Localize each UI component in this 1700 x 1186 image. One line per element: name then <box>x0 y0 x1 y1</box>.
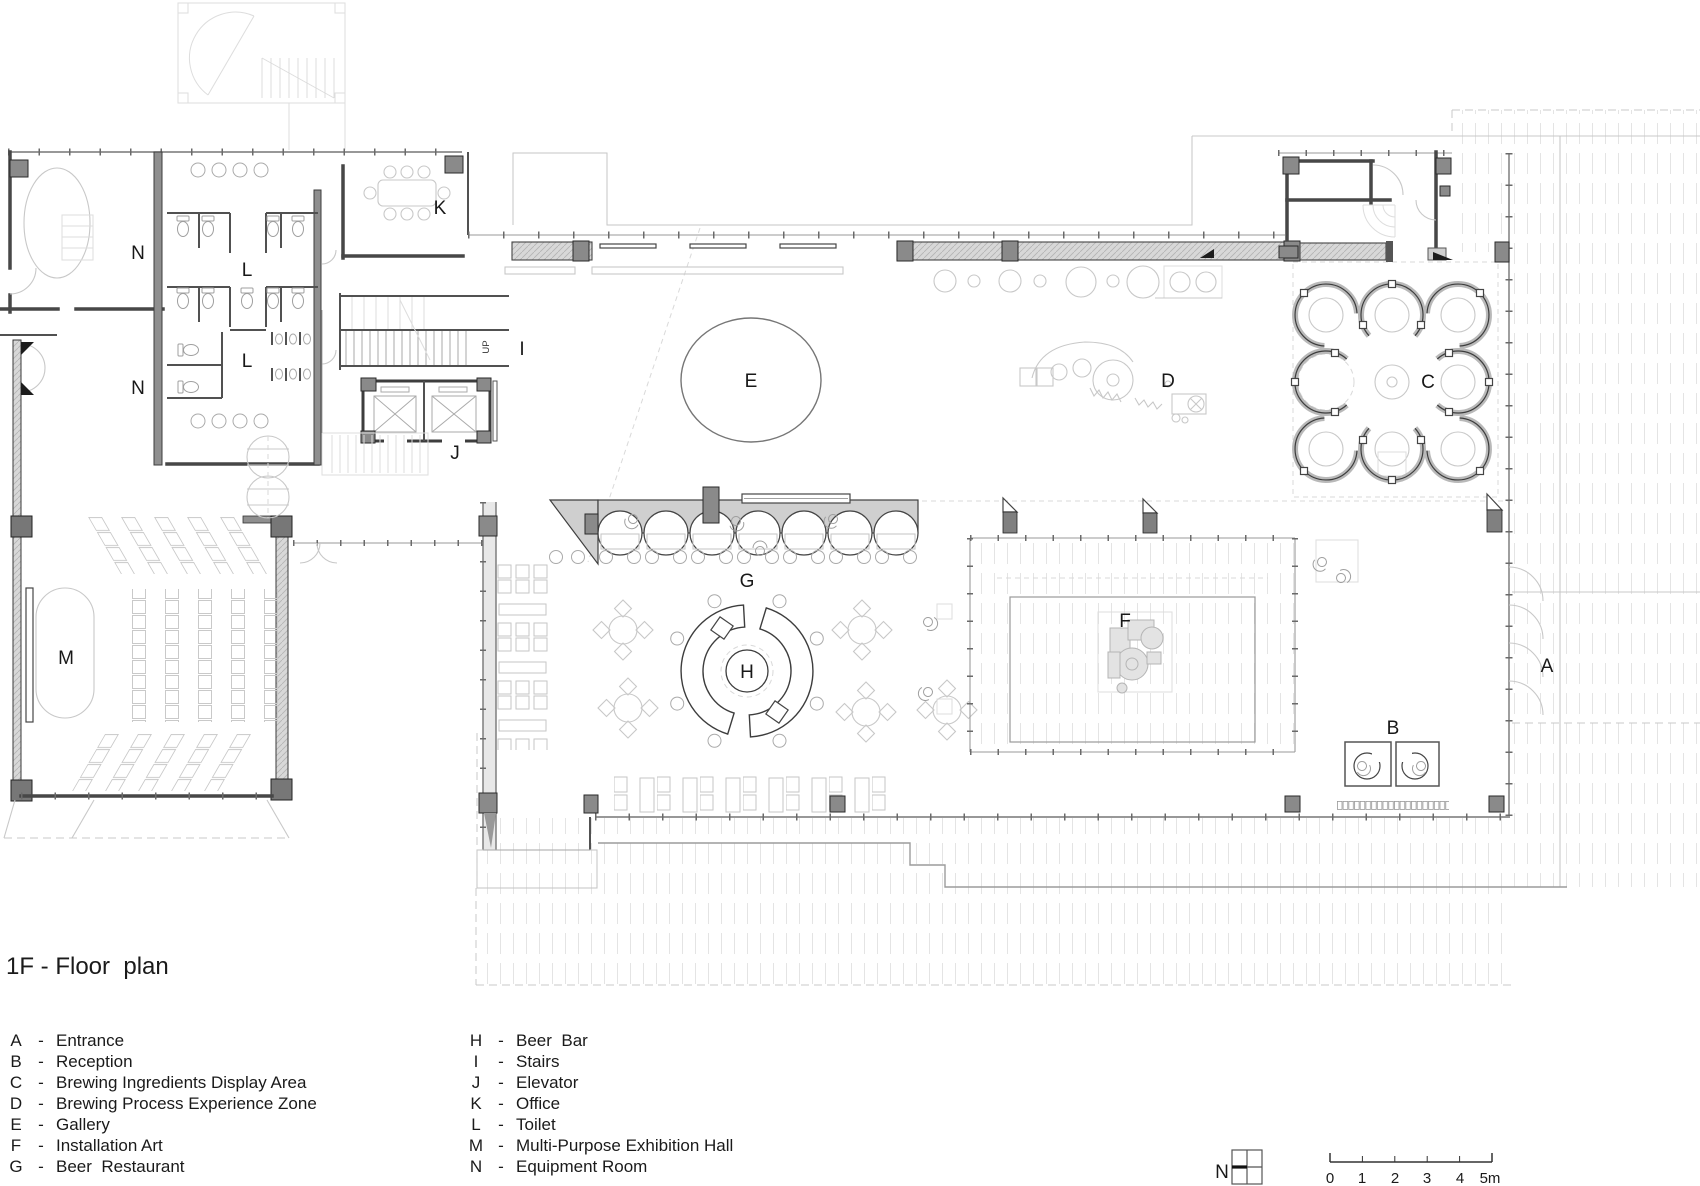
legend-dash: - <box>486 1157 516 1177</box>
courtyard <box>916 498 1295 752</box>
brewing-machinery <box>1020 342 1206 423</box>
room-label-f: F <box>1119 611 1131 632</box>
room-label-e: E <box>745 371 758 392</box>
legend-dash: - <box>486 1094 516 1114</box>
restaurant <box>497 487 977 813</box>
exhibition-hall <box>4 340 292 838</box>
legend-label: Elevator <box>516 1073 578 1093</box>
room-label-b: B <box>1387 718 1400 739</box>
legend-dash: - <box>486 1031 516 1051</box>
legend-key: B <box>6 1052 26 1072</box>
legend-label: Toilet <box>516 1115 556 1135</box>
stairs-up-label: UP <box>481 340 492 353</box>
scale-tick-5m: 5m <box>1480 1170 1501 1186</box>
legend-row-e: E-Gallery <box>6 1115 317 1136</box>
legend-key: E <box>6 1115 26 1135</box>
legend-key: G <box>6 1157 26 1177</box>
north-wing <box>0 152 468 465</box>
scale-tick-2: 2 <box>1391 1170 1399 1186</box>
legend-dash: - <box>26 1073 56 1093</box>
legend-row-n: N-Equipment Room <box>466 1156 733 1177</box>
legend-right: H-Beer Bar I-Stairs J-Elevator K-Office … <box>466 1031 733 1177</box>
legend-dash: - <box>26 1115 56 1135</box>
legend-label: Brewing Process Experience Zone <box>56 1094 317 1114</box>
legend-row-i: I-Stairs <box>466 1052 733 1073</box>
legend-key: H <box>466 1031 486 1051</box>
room-label-g: G <box>740 571 755 592</box>
legend-label: Stairs <box>516 1052 559 1072</box>
room-label-m: M <box>58 648 74 669</box>
legend-label: Reception <box>56 1052 133 1072</box>
legend-dash: - <box>486 1073 516 1093</box>
legend-row-f: F-Installation Art <box>6 1135 317 1156</box>
legend-label: Beer Restaurant <box>56 1157 185 1177</box>
legend-key: J <box>466 1073 486 1093</box>
legend-key: K <box>466 1094 486 1114</box>
display-wall <box>468 235 1300 298</box>
legend-label: Installation Art <box>56 1136 163 1156</box>
legend-key: D <box>6 1094 26 1114</box>
room-label-k: K <box>434 198 447 219</box>
legend-key: I <box>466 1052 486 1072</box>
room-label-l1: L <box>242 260 253 281</box>
legend-label: Gallery <box>56 1115 110 1135</box>
legend-row-c: C-Brewing Ingredients Display Area <box>6 1073 317 1094</box>
scale-tick-4: 4 <box>1456 1170 1464 1186</box>
page-title: 1F - Floor plan <box>6 953 169 981</box>
scale-tick-3: 3 <box>1423 1170 1431 1186</box>
room-label-h: H <box>740 662 754 683</box>
room-label-d: D <box>1161 371 1175 392</box>
room-label-j: J <box>450 443 460 464</box>
north-arrow-label: N <box>1215 1162 1229 1183</box>
stairs-and-elevators <box>322 293 509 475</box>
room-label-i: I <box>519 339 524 360</box>
legend-label: Entrance <box>56 1031 124 1051</box>
legend-label: Multi-Purpose Exhibition Hall <box>516 1136 733 1156</box>
scale-tick-0: 0 <box>1326 1170 1334 1186</box>
legend-row-b: B-Reception <box>6 1052 317 1073</box>
legend-label: Beer Bar <box>516 1031 588 1051</box>
tank-room <box>1292 262 1499 497</box>
room-label-n1: N <box>131 243 145 264</box>
legend-row-m: M-Multi-Purpose Exhibition Hall <box>466 1135 733 1156</box>
legend-row-g: G-Beer Restaurant <box>6 1156 317 1177</box>
legend-label: Equipment Room <box>516 1157 647 1177</box>
legend-label: Brewing Ingredients Display Area <box>56 1073 306 1093</box>
legend-left: A-Entrance B-Reception C-Brewing Ingredi… <box>6 1031 317 1177</box>
north-arrow: N <box>1215 1150 1262 1184</box>
legend-key: F <box>6 1136 26 1156</box>
floor-plan-page: N L K N L I UP J E D C M G H F B A N 0 1… <box>0 0 1700 1186</box>
room-label-l2: L <box>242 351 253 372</box>
legend-key: L <box>466 1115 486 1135</box>
room-label-a: A <box>1541 656 1554 677</box>
legend-key: M <box>466 1136 486 1156</box>
legend-dash: - <box>486 1052 516 1072</box>
legend-dash: - <box>486 1115 516 1135</box>
legend-row-a: A-Entrance <box>6 1031 317 1052</box>
north-east-rooms <box>1278 152 1453 262</box>
legend-dash: - <box>26 1094 56 1114</box>
floor-plan-drawing: N L K N L I UP J E D C M G H F B A N 0 1… <box>0 0 1700 1186</box>
legend-row-j: J-Elevator <box>466 1073 733 1094</box>
legend-dash: - <box>486 1136 516 1156</box>
legend-row-d: D-Brewing Process Experience Zone <box>6 1094 317 1115</box>
legend-key: N <box>466 1157 486 1177</box>
legend-dash: - <box>26 1157 56 1177</box>
scale-tick-1: 1 <box>1358 1170 1366 1186</box>
legend-dash: - <box>26 1031 56 1051</box>
legend-dash: - <box>26 1136 56 1156</box>
room-label-c: C <box>1421 372 1435 393</box>
legend-row-k: K-Office <box>466 1094 733 1115</box>
legend-row-h: H-Beer Bar <box>466 1031 733 1052</box>
scale-bar: 0 1 2 3 4 5m <box>1326 1153 1501 1186</box>
legend-dash: - <box>26 1052 56 1072</box>
legend-row-l: L-Toilet <box>466 1115 733 1136</box>
room-label-n2: N <box>131 378 145 399</box>
legend-label: Office <box>516 1094 560 1114</box>
legend-key: A <box>6 1031 26 1051</box>
legend-key: C <box>6 1073 26 1093</box>
